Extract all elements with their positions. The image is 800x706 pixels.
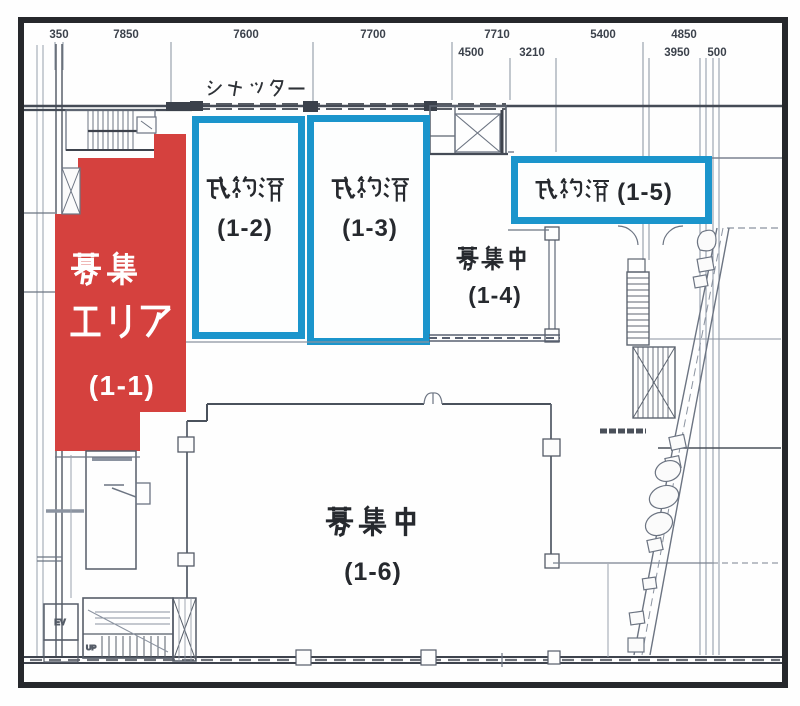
- svg-text:4850: 4850: [671, 29, 697, 41]
- svg-text:4500: 4500: [458, 47, 484, 59]
- svg-text:350: 350: [49, 29, 68, 41]
- svg-text:7700: 7700: [360, 29, 386, 41]
- svg-text:(1-1): (1-1): [89, 370, 156, 401]
- svg-text:(1-4): (1-4): [468, 282, 522, 308]
- svg-text:7710: 7710: [484, 29, 510, 41]
- svg-text:3210: 3210: [519, 47, 545, 59]
- svg-text:(1-2): (1-2): [217, 215, 273, 242]
- svg-text:5400: 5400: [590, 29, 616, 41]
- svg-text:UP: UP: [86, 643, 96, 652]
- svg-text:(1-3): (1-3): [342, 215, 398, 242]
- svg-text:(1-5): (1-5): [617, 179, 673, 206]
- svg-text:EV: EV: [54, 617, 66, 627]
- svg-text:7600: 7600: [233, 29, 259, 41]
- svg-text:3950: 3950: [664, 47, 690, 59]
- svg-text:7850: 7850: [113, 29, 139, 41]
- svg-text:500: 500: [707, 47, 726, 59]
- svg-text:(1-6): (1-6): [344, 558, 402, 586]
